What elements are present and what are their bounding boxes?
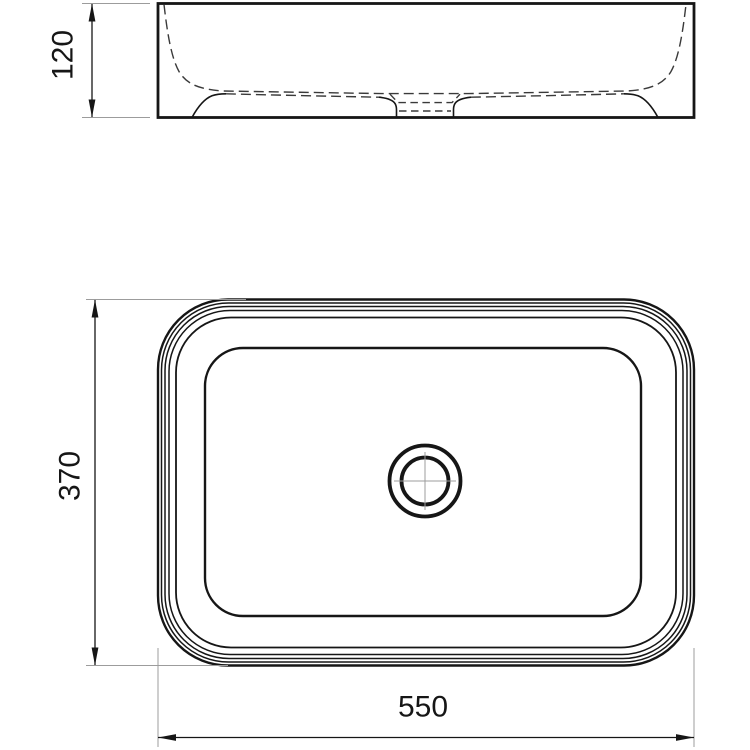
drawing-sheet: 120 370 xyxy=(0,0,750,750)
arrowhead-down xyxy=(92,648,99,666)
front-bowl-underside-hidden-line-left xyxy=(226,94,379,97)
plan-rim-outline-2 xyxy=(162,303,691,662)
front-base-edge-right xyxy=(624,94,658,118)
front-drain-boss-right xyxy=(454,97,472,117)
plan-rim-outline-5 xyxy=(176,318,676,648)
plan-bowl-outline xyxy=(205,348,641,616)
arrowhead-left xyxy=(158,734,176,741)
arrowhead-right xyxy=(676,734,694,741)
plan-rim-outline-3 xyxy=(165,307,687,659)
front-outline xyxy=(158,4,694,118)
front-bowl-underside-hidden-line-right xyxy=(471,94,624,97)
front-base-edge-left xyxy=(192,94,226,118)
dimension-height: 120 xyxy=(47,4,151,118)
washbasin-technical-drawing: 120 370 xyxy=(0,0,750,750)
dimension-depth: 370 xyxy=(54,300,247,666)
arrowhead-up xyxy=(92,300,99,318)
front-view xyxy=(158,4,694,118)
plan-rim-outline-1 xyxy=(158,300,694,666)
plan-view xyxy=(158,300,694,666)
drain xyxy=(390,446,461,517)
arrowhead-up xyxy=(89,4,96,22)
plan-rim-outline-4 xyxy=(169,311,683,655)
front-bowl-hidden-line xyxy=(164,5,686,94)
dim-height-label: 120 xyxy=(47,30,80,80)
dimension-width: 550 xyxy=(158,648,694,747)
dim-depth-label: 370 xyxy=(54,451,87,501)
dim-width-label: 550 xyxy=(398,691,448,724)
front-drain-recess-hidden-line xyxy=(390,94,460,102)
arrowhead-down xyxy=(89,100,96,118)
front-drain-boss-left xyxy=(379,97,397,117)
